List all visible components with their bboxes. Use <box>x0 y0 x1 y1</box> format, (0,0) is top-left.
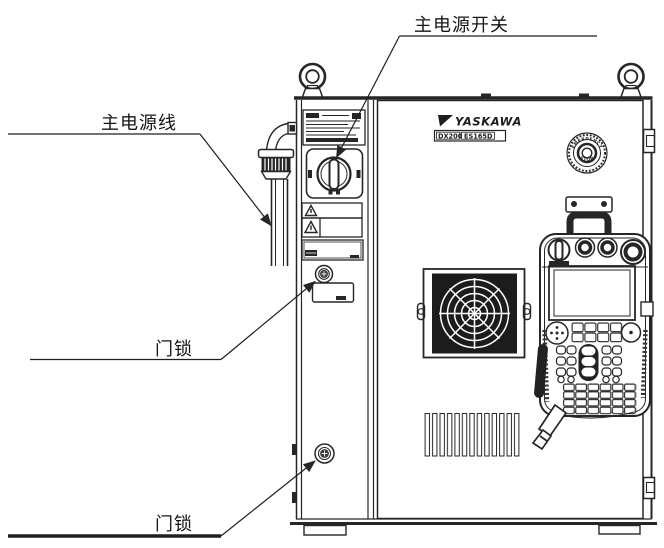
yaskawa-logo-mark <box>438 115 453 127</box>
cable-connector <box>259 150 294 158</box>
estop-label-bottom: STOP <box>579 155 595 163</box>
diagram-canvas: YASKAWA DX200 ES165D EMERGENCY STOP <box>0 0 664 548</box>
switch-handle <box>330 160 339 190</box>
leader-arrow-power-cable <box>200 134 271 226</box>
callout-main-power-switch: 主电源开关 <box>414 11 509 37</box>
emergency-stop-button: EMERGENCY STOP <box>567 133 607 173</box>
yaskawa-logo: YASKAWA <box>438 115 522 129</box>
pendant-function-keys <box>572 323 623 343</box>
eye-bolt-right <box>619 64 644 97</box>
door-hinge-bottom <box>644 478 655 499</box>
model-series: DX200 <box>438 132 463 140</box>
eye-bolt-left <box>300 64 325 97</box>
fan-grille <box>418 269 531 358</box>
cabinet-foot-left <box>304 526 346 536</box>
pendant-numeric-keys <box>563 384 637 415</box>
door-label <box>313 283 354 302</box>
door-lock-lower <box>315 444 334 463</box>
brand-name: YASKAWA <box>455 115 522 129</box>
warning-labels <box>302 203 362 237</box>
main-power-cable <box>259 123 297 267</box>
door-hinge-top <box>644 130 655 153</box>
svg-text:STOP: STOP <box>579 155 595 163</box>
model-badge: DX200 ES165D <box>435 131 506 142</box>
callout-door-lock-lower: 门锁 <box>155 510 193 536</box>
pendant-side-clip <box>641 302 653 316</box>
fan-blades <box>439 278 510 349</box>
teach-pendant <box>533 197 653 449</box>
pendant-hook <box>570 215 608 233</box>
controller-front-view-diagram: YASKAWA DX200 ES165D EMERGENCY STOP <box>0 0 664 548</box>
rating-nameplate <box>303 110 365 145</box>
model-number: ES165D <box>464 132 493 140</box>
info-label <box>302 240 363 260</box>
callout-main-power-cable: 主电源线 <box>101 109 177 135</box>
main-power-switch <box>307 149 363 198</box>
door-lock-upper <box>316 266 333 283</box>
vent-slots <box>425 413 522 457</box>
callout-door-lock-upper: 门锁 <box>155 335 193 361</box>
cabinet-foot-right <box>599 526 640 535</box>
